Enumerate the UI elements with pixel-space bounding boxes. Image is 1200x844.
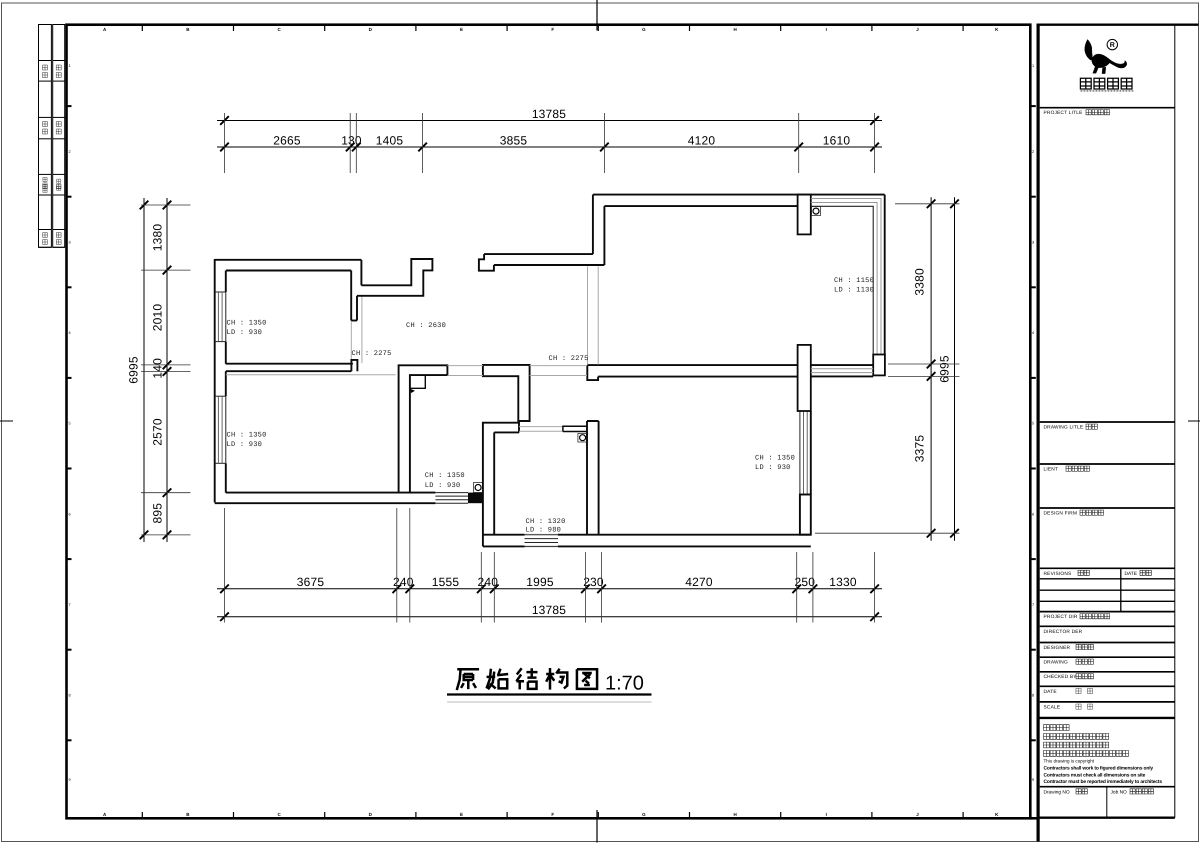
svg-text:250: 250 [794,575,815,589]
svg-text:1: 1 [68,64,70,68]
svg-text:4120: 4120 [688,133,716,147]
svg-text:J: J [916,27,919,32]
svg-text:895: 895 [151,503,165,524]
svg-text:A: A [103,27,107,32]
svg-text:3855: 3855 [500,133,528,147]
svg-text:7: 7 [1032,603,1034,607]
svg-text:E: E [460,812,463,817]
svg-text:DATE: DATE [1044,689,1057,695]
svg-text:LD : 980: LD : 980 [526,527,562,535]
svg-text:CH : 2630: CH : 2630 [406,322,446,330]
svg-text:Contractors shall work to figu: Contractors shall work to figured dimens… [1044,765,1154,771]
svg-text:5: 5 [68,422,70,426]
svg-text:R: R [1110,42,1115,49]
svg-text:2: 2 [68,150,70,154]
svg-text:1380: 1380 [151,224,165,252]
svg-text:F: F [551,812,554,817]
svg-text:CH : 2275: CH : 2275 [549,355,589,363]
svg-text:CH : 1350: CH : 1350 [227,320,267,328]
svg-text:7: 7 [68,603,70,607]
svg-text:K: K [995,812,999,817]
svg-text:Drawing NO: Drawing NO [1044,789,1070,795]
svg-text:1: 1 [1032,64,1034,68]
svg-text:H: H [733,27,736,32]
svg-text:DRAWING: DRAWING [1044,660,1068,666]
svg-text:8: 8 [68,694,70,698]
svg-text:4: 4 [1032,331,1034,335]
svg-text:230: 230 [583,575,604,589]
svg-text:C: C [277,812,281,817]
svg-text:LD : 930: LD : 930 [227,329,263,337]
svg-text:3375: 3375 [913,435,927,463]
svg-text:D: D [369,812,373,817]
svg-text:G: G [642,27,646,32]
svg-text:CH : 2275: CH : 2275 [352,350,392,358]
svg-text:9: 9 [1032,778,1034,782]
svg-text:C: C [277,27,281,32]
svg-text:CH : 1350: CH : 1350 [425,472,465,480]
svg-text:This drawing is copyright: This drawing is copyright [1044,758,1095,763]
svg-text:6: 6 [1032,512,1034,516]
svg-text:1405: 1405 [376,133,404,147]
svg-text:3: 3 [1032,241,1034,245]
svg-text:SCALE: SCALE [1044,704,1061,710]
svg-text:J: J [916,812,919,817]
svg-text:DESIGNER: DESIGNER [1044,645,1071,651]
svg-text:2010: 2010 [151,304,165,332]
svg-text:F: F [551,27,554,32]
svg-text:130: 130 [341,133,362,147]
svg-text:LD : 930: LD : 930 [755,464,791,472]
svg-text:DRAWING LITLE: DRAWING LITLE [1044,425,1084,431]
svg-text:1995: 1995 [526,575,554,589]
svg-text:1555: 1555 [432,575,460,589]
svg-text:A: A [103,812,107,817]
svg-text:CHECKED BY: CHECKED BY [1044,674,1078,680]
svg-text:CH : 1350: CH : 1350 [755,455,795,463]
svg-text:REVISIONS: REVISIONS [1044,571,1072,577]
svg-text:1:70: 1:70 [605,673,644,695]
svg-text:Job NO: Job NO [1111,789,1128,795]
svg-text:CH : 1350: CH : 1350 [227,431,267,439]
svg-text:6995: 6995 [938,355,952,383]
svg-text:6995: 6995 [126,356,140,384]
svg-text:3: 3 [68,241,70,245]
svg-text:DATE: DATE [1125,571,1137,577]
svg-text:2665: 2665 [273,133,301,147]
svg-text:K: K [995,27,999,32]
svg-text:CH : 1150: CH : 1150 [834,277,874,285]
svg-text:13785: 13785 [532,603,566,617]
svg-text:3675: 3675 [297,575,325,589]
svg-text:E: E [460,27,463,32]
svg-text:4: 4 [68,331,70,335]
svg-text:240: 240 [393,575,414,589]
svg-text:DESIGN FIRM: DESIGN FIRM [1044,511,1078,517]
svg-text:1610: 1610 [823,133,851,147]
svg-text:Contractor must be reported im: Contractor must be reported immediately … [1044,779,1163,785]
svg-text:Contractors must check all dim: Contractors must check all dimensions on… [1044,773,1146,779]
svg-text:LD : 930: LD : 930 [227,441,263,449]
svg-text:D: D [369,27,373,32]
svg-text:1330: 1330 [829,575,857,589]
svg-text:3380: 3380 [913,268,927,296]
svg-text:240: 240 [477,575,498,589]
svg-text:8: 8 [1032,694,1034,698]
svg-text:LIENT: LIENT [1044,467,1059,473]
svg-text:PROJECT DIR: PROJECT DIR [1044,614,1078,620]
svg-text:140: 140 [151,358,165,379]
svg-text:2: 2 [1032,150,1034,154]
svg-text:B: B [186,27,190,32]
svg-text:CH : 1320: CH : 1320 [526,518,566,526]
svg-text:H: H [733,812,736,817]
svg-text:G: G [642,812,646,817]
svg-text:I: I [826,27,827,32]
svg-text:13785: 13785 [532,107,566,121]
svg-text:LD : 930: LD : 930 [425,482,461,490]
svg-text:PROJECT LITLE: PROJECT LITLE [1044,110,1083,116]
svg-text:LD : 1130: LD : 1130 [834,287,874,295]
svg-text:6: 6 [68,512,70,516]
svg-text:9: 9 [68,778,70,782]
svg-text:B: B [186,812,190,817]
svg-text:DIRECTOR DER: DIRECTOR DER [1044,629,1083,635]
svg-text:5: 5 [1032,422,1034,426]
svg-text:4270: 4270 [685,575,713,589]
svg-text:2570: 2570 [151,418,165,446]
svg-text:I: I [826,812,827,817]
